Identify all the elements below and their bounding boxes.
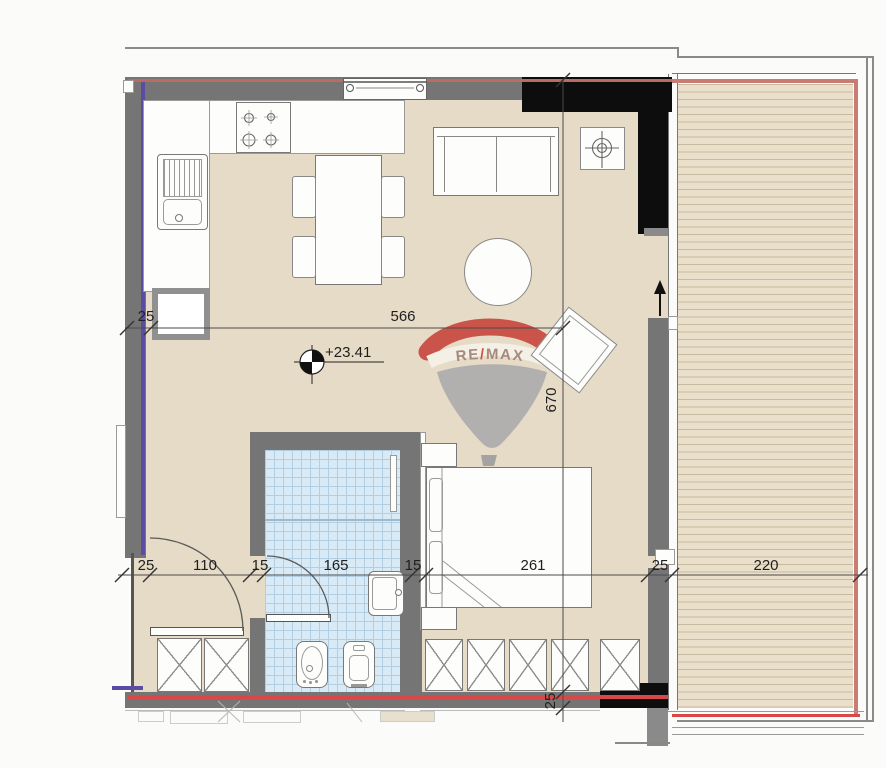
dim-bottom-5: 261 [520, 557, 545, 574]
window-hinge-icon [417, 85, 424, 92]
dim-depth-span: 670 [543, 387, 560, 412]
entry-arrow-icon [654, 280, 666, 316]
door-swing-arcs [150, 538, 329, 631]
elevation-value: +23.41 [325, 344, 371, 361]
annotations-layer: +23.41 25 566 670 25 110 15 165 15 261 2… [0, 0, 886, 768]
dimension-labels: 25 566 670 25 110 15 165 15 261 25 220 2… [138, 308, 779, 709]
bathroom-door-arc [267, 556, 329, 618]
dim-bottom-4: 15 [405, 557, 422, 574]
window-symbol [343, 82, 427, 92]
dimension-ticks [115, 73, 867, 715]
dim-top-wall: 25 [138, 308, 155, 325]
bed-details [442, 468, 501, 607]
dim-bottom-7: 220 [753, 557, 778, 574]
floorplan-canvas: RE/MAX [0, 0, 886, 768]
dim-bottom-wall: 25 [542, 693, 559, 710]
dim-bottom-3: 165 [323, 557, 348, 574]
floor-drain-symbol [585, 131, 619, 168]
below-wall-hints [218, 701, 362, 722]
window-hinge-icon [347, 85, 354, 92]
dimension-lines [118, 80, 868, 722]
elevation-marker: +23.41 [294, 344, 384, 384]
dim-bottom-0: 25 [138, 557, 155, 574]
dim-bottom-1: 110 [193, 557, 217, 574]
dim-bottom-6: 25 [652, 557, 669, 574]
dim-top-span: 566 [390, 308, 415, 325]
dim-bottom-2: 15 [252, 557, 269, 574]
entrance-door-arc [150, 538, 243, 631]
stove-burners [240, 110, 279, 149]
